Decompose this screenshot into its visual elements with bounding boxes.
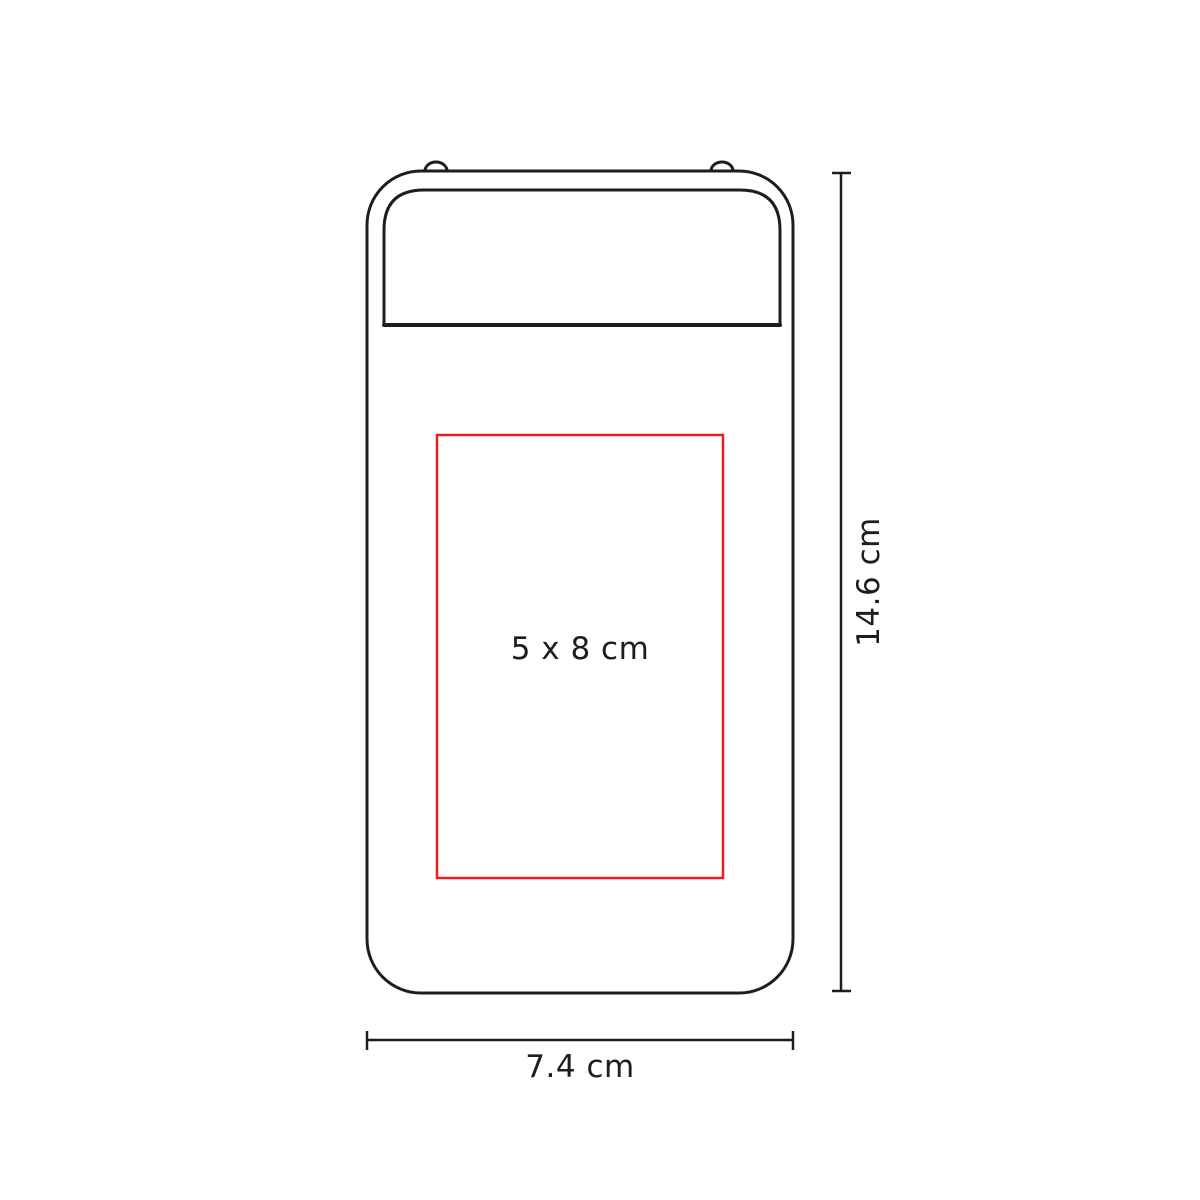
dimension-labels-group: 5 x 8 cm 14.6 cm 7.4 cm [511,517,887,1085]
print-area-label: 5 x 8 cm [511,631,650,667]
product-dimension-diagram: 5 x 8 cm 14.6 cm 7.4 cm [0,0,1200,1200]
dimension-lines-group [367,173,851,1050]
width-dimension-label: 7.4 cm [525,1049,634,1085]
device-outline-group [367,162,793,993]
height-dimension-label: 14.6 cm [851,517,887,647]
diagram-canvas: 5 x 8 cm 14.6 cm 7.4 cm [0,0,1200,1200]
device-display-window [384,190,780,325]
device-body-outline [367,171,793,993]
